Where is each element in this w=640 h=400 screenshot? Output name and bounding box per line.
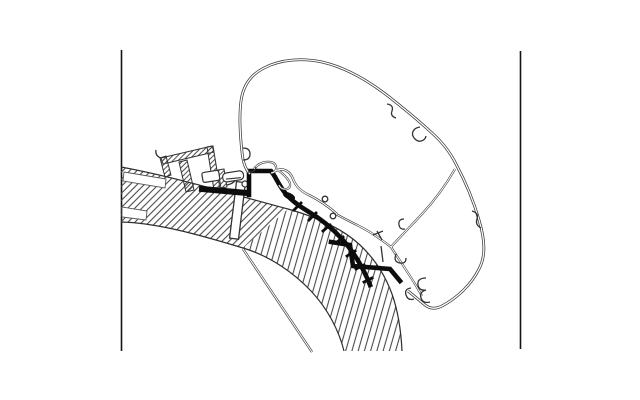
arm-core [336, 214, 391, 247]
tick [294, 203, 301, 210]
case-inner-arm-right [391, 169, 455, 247]
seal-blob [282, 190, 296, 201]
arm-core [391, 169, 455, 247]
panel-end-notch-bottom [122, 207, 147, 220]
case-left-curl-a [243, 148, 250, 160]
clip-details [243, 104, 481, 303]
roof-panel-bend [243, 209, 402, 351]
tip-curl-s [406, 288, 414, 300]
mounting-rail [156, 146, 237, 192]
wall-core [243, 249, 312, 352]
clamp-block-left [202, 170, 220, 183]
bracket-core [278, 170, 290, 189]
arm-core [391, 247, 422, 296]
bracket-core [254, 162, 276, 173]
rail-left-prong [160, 156, 171, 177]
clamp-block-right [222, 170, 244, 182]
awning-case-outline-core [240, 60, 484, 308]
fixing-screw [230, 182, 246, 240]
rail-center-post [179, 160, 194, 192]
clamp-detail-line [226, 177, 241, 180]
tick [336, 237, 343, 243]
roof-panel-upper [121, 167, 288, 248]
wave-curl-a [322, 196, 328, 202]
wave-curl-b [330, 213, 336, 219]
arm-hook-u [395, 254, 406, 263]
mount-bracket-hook-b [278, 170, 290, 189]
tick [364, 278, 372, 282]
profiles-outer [240, 60, 484, 352]
tick [356, 265, 364, 269]
tip-curl-3 [418, 278, 430, 303]
tick [309, 213, 316, 220]
arm-hook-c [399, 219, 405, 229]
case-inner-arm-left [336, 214, 391, 247]
adapter-ticks [294, 203, 372, 282]
roof-panel-outline [121, 167, 402, 351]
frame-borders [122, 50, 521, 351]
arm-tick-t [373, 231, 383, 240]
rail-curl-left [156, 150, 161, 158]
adapter-profile [202, 171, 400, 285]
panel-end-notch-top [123, 172, 166, 188]
drawing-canvas [0, 0, 640, 400]
technical-diagram [0, 0, 640, 400]
rail-gutter-hook [227, 176, 237, 185]
bolt-head [242, 181, 248, 187]
drip-edge-wave [275, 169, 337, 214]
side-wall-line [243, 249, 312, 352]
case-left-curl-b [248, 167, 256, 172]
rail-top-bar [161, 146, 214, 164]
awning-case-outline [240, 60, 484, 308]
roof-panel [121, 167, 402, 351]
case-clip-c [413, 127, 426, 141]
rail-right-wall [207, 146, 220, 190]
rail-gutter-strip [218, 169, 227, 188]
tick [323, 225, 330, 231]
adapter-lower-bracket [331, 242, 400, 281]
fixing-hardware [202, 166, 248, 239]
adapter-rail-curve [249, 171, 370, 285]
case-clip-bump [387, 104, 396, 118]
case-face-hook [472, 211, 481, 228]
tick [347, 251, 355, 256]
wave-core [275, 169, 337, 214]
adapter-base-bar [202, 189, 247, 193]
arm-connector [381, 246, 383, 262]
profiles-inner [240, 60, 484, 352]
case-inner-arm-tip [391, 247, 422, 296]
mount-bracket-hook-a [254, 162, 276, 173]
